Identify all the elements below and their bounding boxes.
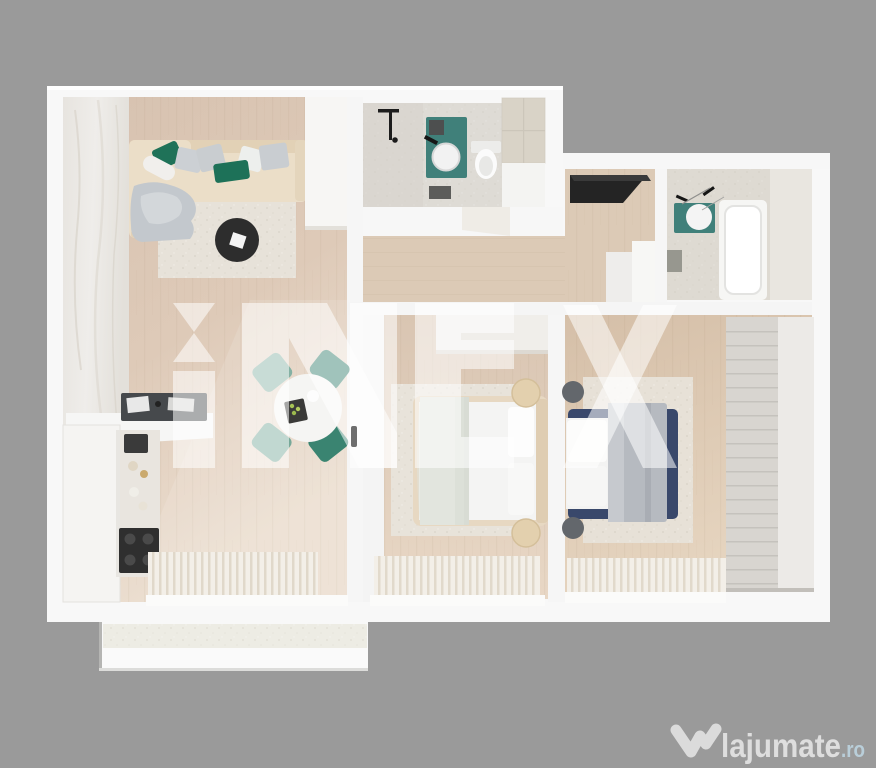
svg-text:lajumate: lajumate — [721, 727, 841, 764]
svg-text:.ro: .ro — [841, 737, 865, 762]
